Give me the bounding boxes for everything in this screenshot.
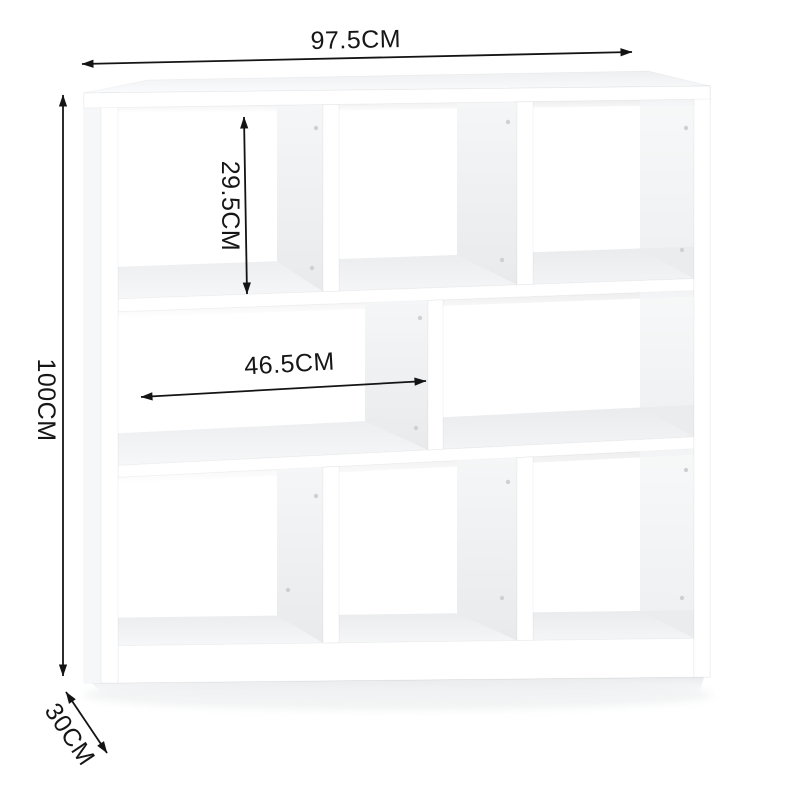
right-panel-front-edge [694,86,710,677]
divider-side-face [457,102,517,285]
depth-dimension-label: 30CM [39,698,101,771]
depth-dimension-arrow: 30CM [39,692,107,771]
shelf-width-dimension-label: 46.5CM [244,348,336,381]
cubby-height-dimension-label: 29.5CM [216,161,244,252]
divider-side-face [277,467,323,643]
height-dimension-arrow: 100CM [32,95,63,676]
left-panel-outer-face [84,93,101,683]
product-dimension-image: 97.5CM 100CM 29.5CM 46.5CM 30CM [0,0,800,800]
height-dimension-label: 100CM [32,358,60,441]
right-panel-inner-face [640,449,694,639]
bookshelf [84,71,710,683]
width-dimension-arrow: 97.5CM [82,25,632,64]
width-dimension-label: 97.5CM [310,25,401,55]
divider-side-face [457,458,517,641]
bookshelf-diagram: 97.5CM 100CM 29.5CM 46.5CM 30CM [0,0,800,800]
left-panel-front-edge [101,93,118,683]
divider-side-face [277,105,323,292]
